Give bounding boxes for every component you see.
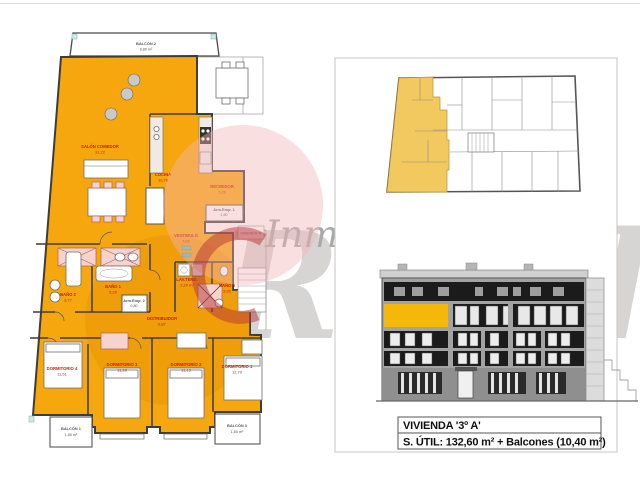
svg-text:Arm.Emp. 2: Arm.Emp. 2 bbox=[123, 298, 145, 303]
column bbox=[146, 188, 164, 224]
balcony1-area: 1,80 m² bbox=[65, 433, 78, 437]
unit-title: VIVIENDA '3º A' bbox=[403, 420, 481, 432]
svg-text:3,92: 3,92 bbox=[223, 289, 232, 294]
balcony-3: BALCÓN 3 1,80 m² bbox=[215, 414, 260, 444]
svg-text:11,28: 11,28 bbox=[117, 368, 127, 373]
logo-pink-circle bbox=[163, 125, 323, 285]
balcony3-label: BALCÓN 3 bbox=[227, 423, 248, 428]
sheet-canvas: Ronda Inmobiliaria bbox=[0, 0, 640, 480]
svg-text:DISTRIBUIDOR: DISTRIBUIDOR bbox=[147, 316, 177, 321]
svg-text:11,13: 11,13 bbox=[181, 368, 191, 373]
right-panel: VIVIENDA '3º A' S. ÚTIL: 132,60 m² + Bal… bbox=[335, 58, 638, 452]
building-elevation bbox=[376, 263, 638, 401]
svg-text:12,70: 12,70 bbox=[232, 370, 243, 375]
entrance-door bbox=[458, 371, 473, 398]
svg-text:0,80: 0,80 bbox=[130, 304, 137, 308]
svg-text:BAÑO 1: BAÑO 1 bbox=[105, 284, 121, 289]
svg-text:31,22: 31,22 bbox=[95, 150, 106, 155]
svg-text:6,87: 6,87 bbox=[158, 322, 167, 327]
drawing-sheet: Ronda Inmobiliaria bbox=[0, 0, 640, 480]
unit-surface: S. ÚTIL: 132,60 m² + Balcones (10,40 m²) bbox=[403, 436, 606, 449]
svg-text:DORMITORIO 3: DORMITORIO 3 bbox=[107, 362, 138, 367]
elevation-parapet bbox=[380, 270, 588, 278]
svg-text:BAÑO 2: BAÑO 2 bbox=[60, 292, 76, 297]
balcony-1: BALCÓN 1 1,80 m² bbox=[50, 417, 92, 447]
balcony2-area: 6,80 m² bbox=[140, 48, 153, 52]
svg-text:3,77: 3,77 bbox=[64, 298, 73, 303]
svg-text:DORMITORIO 2: DORMITORIO 2 bbox=[171, 362, 202, 367]
elevation-highlighted-floor bbox=[384, 304, 448, 327]
site-plan bbox=[387, 76, 580, 192]
balcony-2: BALCÓN 2 6,80 m² bbox=[70, 33, 219, 56]
svg-text:SALÓN COMEDOR: SALÓN COMEDOR bbox=[81, 144, 119, 149]
attic-windows bbox=[394, 287, 564, 296]
balcony1-label: BALCÓN 1 bbox=[61, 426, 82, 431]
svg-text:DORMITORIO 1: DORMITORIO 1 bbox=[222, 364, 253, 369]
site-plan-stair bbox=[468, 133, 494, 152]
svg-text:DORMITORIO 4: DORMITORIO 4 bbox=[47, 366, 78, 371]
svg-text:5,29: 5,29 bbox=[109, 290, 118, 295]
neighbour-area bbox=[197, 57, 263, 114]
balcony2-label: BALCÓN 2 bbox=[136, 41, 157, 46]
svg-text:2,20 m²: 2,20 m² bbox=[180, 283, 194, 288]
info-box: VIVIENDA '3º A' S. ÚTIL: 132,60 m² + Bal… bbox=[398, 417, 606, 449]
svg-text:11,51: 11,51 bbox=[57, 372, 67, 377]
balcony3-area: 1,80 m² bbox=[231, 430, 244, 434]
